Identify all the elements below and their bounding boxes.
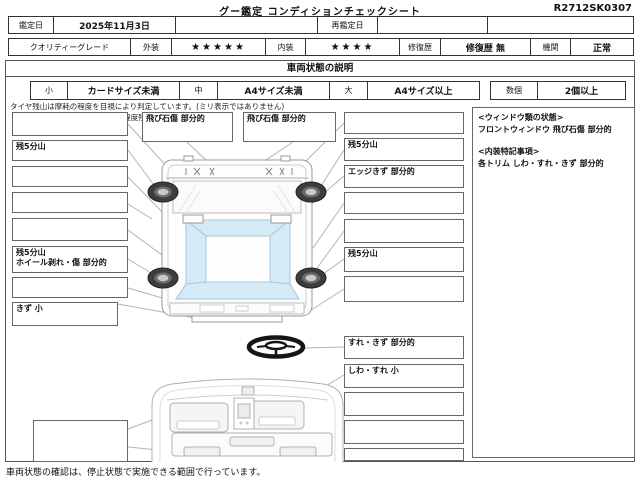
condition-box-label: 飛び石傷 部分的 — [146, 114, 229, 124]
condition-box-label: すれ・きず 部分的 — [348, 338, 460, 348]
condition-box-label: 残5分山 — [16, 142, 124, 152]
condition-box-label: しわ・すれ 小 — [348, 366, 460, 376]
notes-spacer — [478, 137, 629, 146]
footer-note: 車両状態の確認は、停止状態で実施できる範囲で行っています。 — [6, 465, 265, 478]
window-state-header: <ウィンドウ類の状態> — [478, 112, 629, 124]
interior-notes-detail: 各トリム しわ・すれ・きず 部分的 — [478, 158, 629, 170]
notes-panel: <ウィンドウ類の状態> フロントウィンドウ 飛び石傷 部分的 <内装特記事項> … — [472, 107, 635, 458]
condition-check-sheet: グー鑑定 コンディションチェックシート R2712SK0307 鑑定日 2025… — [0, 0, 640, 480]
section-title: 車両状態の説明 — [5, 60, 635, 77]
condition-box-right-10 — [344, 392, 464, 416]
condition-box-left-6: 残5分山 ホイール剥れ・傷 部分的 — [12, 246, 128, 273]
condition-box-right-4 — [344, 192, 464, 214]
window-state-detail: フロントウィンドウ 飛び石傷 部分的 — [478, 124, 629, 136]
condition-box-left-3 — [12, 166, 128, 187]
size-small-value: カードサイズ未満 — [68, 81, 180, 100]
repair-history-value: 修復歴 無 — [441, 38, 531, 56]
size-legend-row: 小 カードサイズ未満 中 A4サイズ未満 大 A4サイズ以上 — [30, 81, 480, 100]
re-appraisal-date-value — [378, 16, 488, 34]
condition-box-label: 残5分山 — [16, 248, 124, 258]
condition-box-top-2: 飛び石傷 部分的 — [243, 112, 336, 142]
appraisal-empty-cell — [488, 16, 634, 34]
condition-box-right-9: しわ・すれ 小 — [344, 364, 464, 388]
quality-grade-row: クオリティーグレード 外装 ★★★★★ 内装 ★★★★ 修復歴 修復歴 無 機関… — [8, 38, 634, 56]
condition-box-left-8: きず 小 — [12, 302, 118, 326]
engine-label: 機関 — [531, 38, 571, 56]
sheet-code: R2712SK0307 — [554, 3, 632, 14]
re-appraisal-date-label: 再鑑定日 — [318, 16, 378, 34]
exterior-label: 外装 — [131, 38, 172, 56]
condition-box-label: ホイール剥れ・傷 部分的 — [16, 258, 124, 268]
interior-stars: ★★★★ — [306, 38, 400, 56]
size-large-value: A4サイズ以上 — [368, 81, 480, 100]
size-mid-value: A4サイズ未満 — [218, 81, 330, 100]
condition-box-right-6: 残5分山 — [344, 247, 464, 272]
interior-label: 内装 — [266, 38, 306, 56]
condition-box-right-7 — [344, 276, 464, 302]
count-value: 2個以上 — [538, 81, 626, 100]
appraisal-date-row: 鑑定日 2025年11月3日 再鑑定日 — [8, 16, 634, 34]
count-label: 数個 — [490, 81, 538, 100]
condition-box-top-1: 飛び石傷 部分的 — [142, 112, 233, 142]
interior-notes-header: <内装特記事項> — [478, 146, 629, 158]
condition-box-right-2: 残5分山 — [344, 138, 464, 161]
condition-box-left-5 — [12, 218, 128, 241]
condition-box-left-2: 残5分山 — [12, 140, 128, 161]
size-mid-label: 中 — [180, 81, 218, 100]
exterior-stars: ★★★★★ — [172, 38, 266, 56]
condition-box-label: 飛び石傷 部分的 — [247, 114, 332, 124]
repair-history-label: 修復歴 — [400, 38, 441, 56]
condition-box-right-8: すれ・きず 部分的 — [344, 336, 464, 359]
size-large-label: 大 — [330, 81, 368, 100]
condition-box-left-7 — [12, 277, 128, 298]
condition-box-right-1 — [344, 112, 464, 134]
count-legend-row: 数個 2個以上 — [490, 81, 626, 100]
condition-box-right-12 — [344, 448, 464, 461]
condition-box-label: エッジきず 部分的 — [348, 167, 460, 177]
tire-wear-note-line1: タイヤ残山は摩耗の程度を目視により判定しています。(ミリ表示ではありません) — [10, 101, 284, 112]
condition-box-label: 残5分山 — [348, 249, 460, 259]
condition-box-label: 残5分山 — [348, 140, 460, 150]
appraisal-date-value: 2025年11月3日 — [54, 16, 176, 34]
condition-box-left-4 — [12, 192, 128, 213]
condition-box-right-5 — [344, 219, 464, 243]
quality-grade-label: クオリティーグレード — [8, 38, 131, 56]
size-small-label: 小 — [30, 81, 68, 100]
engine-value: 正常 — [571, 38, 634, 56]
condition-box-right-3: エッジきず 部分的 — [344, 165, 464, 188]
appraisal-date-label: 鑑定日 — [8, 16, 54, 34]
condition-box-right-11 — [344, 420, 464, 444]
condition-box-label: きず 小 — [16, 304, 114, 314]
condition-box-left-1 — [12, 112, 128, 136]
appraisal-empty-cell — [176, 16, 318, 34]
condition-box-bottom-left — [33, 420, 128, 462]
